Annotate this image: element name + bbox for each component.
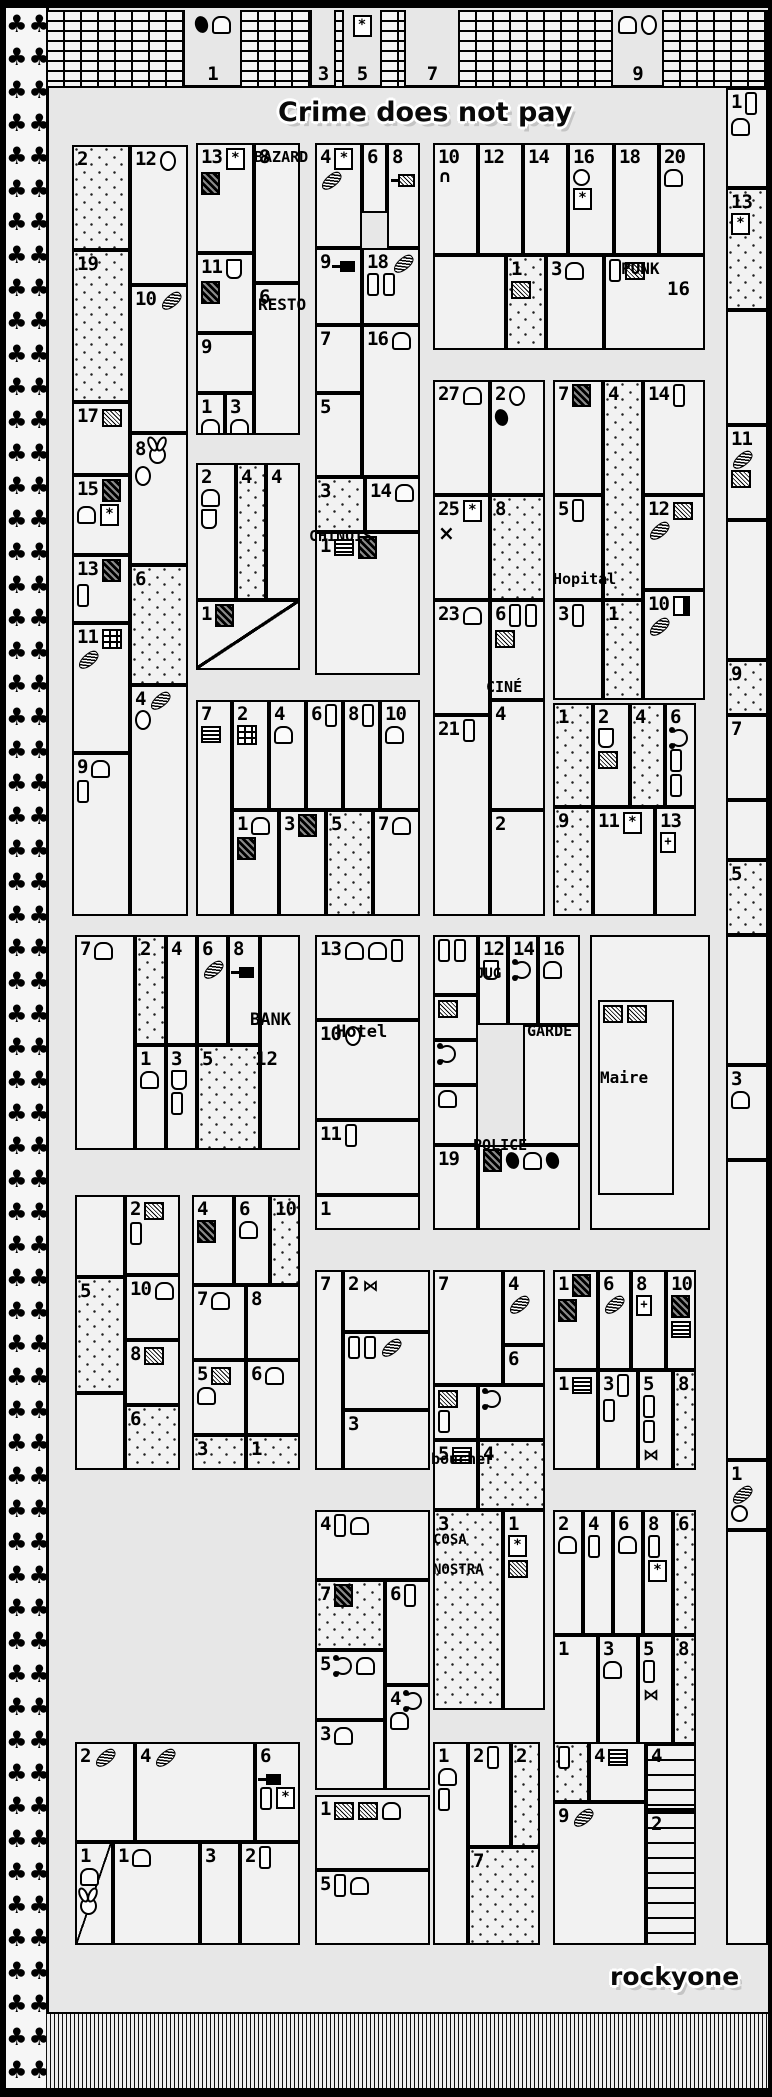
room-number: 1 [199, 396, 213, 417]
bottle-icon [367, 273, 379, 296]
room-number: 2 [243, 1845, 257, 1866]
room-number: 7 [318, 1583, 332, 1604]
helmet-icon [390, 1712, 409, 1730]
bowtie-icon: ⋈ [643, 1447, 659, 1463]
chinois-room: 8 [387, 143, 420, 248]
bottle-icon [643, 1420, 655, 1443]
boucher-room [433, 1385, 478, 1440]
room-number: 8 [676, 1373, 690, 1394]
shoe-icon [93, 1746, 119, 1770]
east-room: 9 [726, 660, 768, 715]
helmet-icon [350, 1517, 369, 1535]
blackcab-icon [197, 1220, 216, 1243]
flag-icon [671, 1321, 691, 1338]
water-band [46, 2012, 768, 2090]
windowh-icon [438, 1390, 458, 1408]
helmet-icon [368, 942, 387, 960]
street-entrance-1: 1 [185, 10, 240, 88]
windowh-icon [438, 1000, 458, 1018]
bowtie-icon: ⋈ [643, 1687, 659, 1703]
room-number: 13 [318, 938, 343, 959]
bottle-icon [572, 499, 584, 522]
room-number: 16 [571, 146, 596, 167]
southwest-room: 4 [135, 1742, 255, 1842]
room-number: 2 [199, 466, 213, 487]
midtown-room: 8 [343, 700, 380, 810]
room-number: 5 [329, 813, 343, 834]
east-2-room: 6 [613, 1510, 643, 1635]
room-number: 3 [195, 1438, 209, 1459]
blackcab-icon [298, 814, 317, 837]
city-wall [458, 10, 613, 88]
helmet-icon [239, 1221, 258, 1239]
south-central-room: 7 [468, 1847, 540, 1945]
helmet-icon [77, 506, 96, 524]
room-number: 5 [318, 1873, 332, 1894]
trolley-icon [398, 174, 415, 187]
midtown-room: 7 [373, 810, 420, 916]
helmet-icon [197, 1387, 216, 1405]
west-brick-room: 6 [125, 1405, 180, 1470]
room-number: 7 [376, 813, 390, 834]
chinois-room: 6 [362, 143, 387, 213]
bazard-resto-room: 9 [196, 333, 254, 393]
southwest-room: 2 [240, 1842, 300, 1945]
game-map-page: ♣♣ ♣♣ ♣♣ ♣♣ ♣♣ ♣♣ ♣♣ ♣♣ ♣♣ ♣♣ ♣♣ ♣♣ ♣♣ ♣… [0, 0, 772, 2097]
room-number: 5 [641, 1373, 655, 1394]
helmet-icon [230, 419, 249, 436]
room-number: 1 [318, 1198, 332, 1219]
room-number: 3 [203, 1845, 217, 1866]
room-number: 6 [506, 1348, 520, 1369]
room-number: 3 [549, 258, 563, 279]
helmet-icon [345, 942, 364, 960]
midtown-room: 1 [232, 810, 279, 916]
room-number: 1 [509, 258, 523, 279]
cine-room: 2 [490, 380, 545, 495]
room-number: 9 [556, 810, 570, 831]
room-number: 2 [75, 148, 89, 169]
room-number: 1 [556, 706, 570, 727]
room-number: 5 [200, 1048, 214, 1069]
helmet-icon [438, 1090, 457, 1108]
helmet-icon [463, 387, 482, 405]
blackcab-icon [201, 172, 220, 195]
room-number: 18 [365, 251, 390, 272]
bazard-annex-room: 2 [196, 463, 236, 600]
hopital-room: 10 [643, 590, 705, 700]
midtown-room: 10 [380, 700, 420, 810]
midtown-room: 7 [196, 700, 232, 916]
police-garde-room [433, 1040, 478, 1085]
room-number: 4 [169, 938, 183, 959]
room-number: 8 [493, 498, 507, 519]
jug-icon [201, 509, 217, 529]
bottle-icon [617, 1374, 629, 1397]
east-room: 7 [726, 715, 768, 800]
bottle-icon [463, 719, 475, 742]
room-number: 18 [617, 146, 642, 167]
room-number: 13 [658, 810, 683, 831]
helmet-icon [201, 489, 220, 507]
room-number: 11 [75, 626, 100, 647]
street-entrance-7: 7 [406, 10, 458, 88]
blacktrolley-icon [239, 967, 254, 978]
room-number: 10 [273, 1198, 298, 1219]
windowh-icon [211, 1367, 231, 1385]
blackcab-icon [572, 1274, 591, 1297]
bazard-annex-room: 1 [196, 600, 300, 670]
room-number: 21 [436, 718, 461, 739]
room-number: 15 [75, 478, 100, 499]
bottle-icon [509, 604, 521, 627]
windowh-icon [334, 1802, 354, 1820]
room-number: 3 [318, 480, 332, 501]
tepee-icon: × [438, 526, 455, 540]
room-number: 5 [318, 1653, 332, 1674]
room-number: 17 [75, 405, 100, 426]
bomb-icon [193, 15, 210, 35]
room-number: 7 [471, 1850, 485, 1871]
east-room: 1 [726, 1460, 768, 1530]
bottle-icon [648, 1535, 660, 1558]
room-number: 12 [481, 938, 506, 959]
blacktrolley-icon [266, 1774, 281, 1785]
central-1-room: 7 [192, 1285, 246, 1360]
room-number: 1 [556, 1273, 570, 1294]
residential-west-room: 8 [130, 433, 188, 565]
room-number: 6 [601, 1273, 615, 1294]
room-number: 2 [556, 1513, 570, 1534]
helmet-icon [523, 1152, 542, 1170]
west-brick-room: 10 [125, 1275, 180, 1340]
block-label: PUNK [621, 259, 660, 278]
residential-west-room: 9 [72, 753, 130, 916]
room-number: 4 [239, 466, 253, 487]
bank-room: 2 [135, 935, 166, 1045]
residential-west-room: 12 [130, 145, 188, 285]
west-brick-room [75, 1195, 125, 1277]
room-number: 10 [133, 288, 158, 309]
blackcab-icon [572, 384, 591, 407]
cine-room: 4 [490, 700, 545, 810]
egg-icon [641, 15, 657, 35]
flag-icon [201, 726, 221, 743]
room-number: 7 [318, 1273, 332, 1294]
hotel-room: 11 [315, 1120, 420, 1195]
south-central-room: 2 [511, 1742, 540, 1847]
room-number: 8 [133, 438, 147, 459]
boucher-room: 6 [503, 1345, 545, 1385]
room-number: 3 [601, 1373, 615, 1394]
block-label: BANK [250, 1010, 291, 1030]
room-number: 7 [729, 718, 743, 739]
egg-icon [135, 466, 151, 486]
room-number: 2 [138, 938, 152, 959]
room-number: 7 [436, 1273, 450, 1294]
bank-room: 4 [166, 935, 197, 1045]
room-number: 5 [729, 863, 743, 884]
safe-icon: * [508, 1535, 527, 1557]
block-label: boucher [431, 1450, 494, 1468]
egg-icon [160, 151, 176, 171]
helmet-icon [603, 1661, 622, 1679]
central-2-room [343, 1332, 430, 1410]
room-number: 19 [436, 1148, 461, 1169]
bottle-icon [334, 1874, 346, 1897]
bottle-icon [77, 780, 89, 803]
punk-room: 16* [568, 143, 614, 255]
room-number: 6 [616, 1513, 630, 1534]
central-1-room: 3 [192, 1435, 246, 1470]
bottle-icon [670, 749, 682, 772]
chinois-room: 7 [315, 325, 362, 393]
cine-room: 27 [433, 380, 490, 495]
maire-room [598, 1000, 674, 1195]
blackcab-icon [558, 1299, 577, 1322]
safe-icon: * [623, 812, 642, 834]
room-number: 1 [729, 91, 743, 112]
street-entrance-3: 3 [312, 10, 334, 88]
hopital-south-room: 9 [553, 807, 593, 916]
room-number: 14 [526, 146, 551, 167]
windowh-icon [731, 470, 751, 488]
room-number: 9 [318, 251, 332, 272]
flag-icon [572, 1377, 592, 1394]
boucher-room [478, 1385, 545, 1440]
east-wall [726, 1530, 768, 1945]
east-room: 13* [726, 188, 768, 310]
central-3-room: 3 [315, 1720, 385, 1790]
midtown-room: 3 [279, 810, 326, 916]
west-brick-room [75, 1393, 125, 1470]
blackcab-icon [334, 1584, 353, 1607]
police-garde-room [433, 1085, 478, 1145]
safe-icon: * [353, 15, 372, 37]
cuffs-icon [513, 961, 531, 979]
room-number: 8 [249, 1288, 263, 1309]
block-label: GARDE [527, 1022, 572, 1040]
east-1-room: 1 [553, 1370, 598, 1470]
block-label: COSA [433, 1532, 467, 1548]
room-number: 5 [195, 1363, 209, 1384]
east-1-room: 8 [673, 1370, 696, 1470]
bottle-icon [673, 384, 685, 407]
room-number: 4 [493, 703, 507, 724]
cine-room: 21 [433, 715, 490, 916]
shoe-icon [571, 1806, 597, 1830]
police-garde-room [433, 995, 478, 1040]
central-1-room: 4 [192, 1195, 234, 1285]
southeast-room: 9 [553, 1802, 646, 1945]
residential-west-room: 13 [72, 555, 130, 623]
safe-icon: * [334, 148, 353, 170]
room-number: 7 [78, 938, 92, 959]
punk-room: 12 [478, 143, 523, 255]
room-number: 9 [75, 756, 89, 777]
room-number: 4 [592, 1745, 606, 1766]
block-label: RESTO [258, 295, 306, 314]
shoe-icon [647, 519, 673, 543]
room-number: 11 [729, 428, 754, 449]
west-brick-room: 8 [125, 1340, 180, 1405]
hopital-room: 14 [643, 380, 705, 495]
room-number: 8 [646, 1513, 660, 1534]
helmet-icon [565, 262, 584, 280]
cine-room: 2 [490, 810, 545, 916]
chinois-room: 16 [362, 325, 420, 477]
room-number: 2 [346, 1273, 360, 1294]
room-number: 3 [729, 1068, 743, 1089]
room-number: 14 [511, 938, 536, 959]
room-number: 4 [138, 1745, 152, 1766]
punk-room [433, 255, 506, 350]
room-number: 6 [200, 938, 214, 959]
shoe-icon [730, 1483, 756, 1507]
east-room: 11 [726, 425, 768, 520]
east-wall [726, 1160, 768, 1460]
central-2-room: 3 [343, 1410, 430, 1470]
room-number: 7 [425, 63, 439, 84]
helmet-icon [91, 760, 110, 778]
shoe-icon [391, 252, 417, 276]
helmet-icon [463, 607, 482, 625]
flag-icon [608, 1749, 628, 1766]
room-number: 1 [199, 603, 213, 624]
hopital-room: 4 [603, 380, 643, 600]
east-1-room: 1 [553, 1270, 598, 1370]
midtown-room: 2 [232, 700, 269, 810]
block-label: CINÉ [486, 678, 522, 696]
hopital-south-room: 6 [665, 703, 696, 807]
midtown-room: 5 [326, 810, 373, 916]
midtown-room: 6 [306, 700, 343, 810]
helmet-icon [385, 726, 404, 744]
bottle-icon [259, 1846, 271, 1869]
room-number: 3 [228, 396, 242, 417]
block-label: 12 [255, 1048, 278, 1070]
cosa-nostra-room: 1* [503, 1510, 545, 1710]
bottle-icon [345, 1124, 357, 1147]
room-number: 10 [669, 1273, 694, 1294]
cine-room: 8 [490, 495, 545, 600]
chinois-room: 14 [365, 477, 420, 532]
room-number: 20 [662, 146, 687, 167]
room-number: 3 [556, 603, 570, 624]
street-entrance-9: 9 [613, 10, 662, 88]
boucher-room: 7 [433, 1270, 503, 1385]
helmet-icon [731, 118, 750, 136]
bottle-icon [391, 939, 403, 962]
block-label: 16 [667, 278, 690, 300]
windowh-icon [598, 751, 618, 769]
residential-west-room: 2 [72, 145, 130, 250]
shoe-icon [730, 448, 756, 472]
room-number: 4 [318, 146, 332, 167]
shoe-icon [647, 615, 673, 639]
windowg-icon [102, 629, 122, 649]
hopital-room: 7 [553, 380, 603, 495]
safe-icon: * [226, 148, 245, 170]
punk-room: 10∩ [433, 143, 478, 255]
hopital-room: 1 [603, 600, 643, 700]
bank-room: 1 [135, 1045, 166, 1150]
room-number: 3 [282, 813, 296, 834]
windowh-icon [508, 1560, 528, 1578]
bottle-icon [745, 92, 757, 115]
room-number: 6 [388, 1583, 402, 1604]
room-number: 7 [318, 328, 332, 349]
west-brick-room: 5 [75, 1277, 125, 1393]
east-room: 1 [726, 88, 768, 188]
windowh-icon [358, 1802, 378, 1820]
room-number: 7 [195, 1288, 209, 1309]
signature: rockyone [610, 1962, 739, 1991]
blackcab-icon [237, 837, 256, 860]
jug-icon [171, 1070, 187, 1090]
central-1-room: 1 [246, 1435, 300, 1470]
east-2-room: 4 [583, 1510, 613, 1635]
room-number: 9 [729, 663, 743, 684]
hopital-south-room: 13+ [655, 807, 696, 916]
windowh-icon [102, 409, 122, 427]
punk-room: 20 [659, 143, 705, 255]
room-number: 1 [436, 1745, 450, 1766]
windowh-icon [627, 1005, 647, 1023]
central-3-room: 4 [315, 1510, 430, 1580]
hopital-south-room: 1 [553, 703, 593, 807]
hotel-room: 1 [315, 1195, 420, 1230]
bottle-icon [454, 939, 466, 962]
rabbit-icon [149, 446, 166, 464]
bottle-icon [171, 1092, 183, 1115]
egg-icon [135, 710, 151, 730]
police-garde-room [523, 1025, 580, 1145]
southwest-room: 2 [75, 1742, 135, 1842]
room-number: 2 [471, 1745, 485, 1766]
room-number: 2 [596, 706, 610, 727]
room-number: 4 [133, 688, 147, 709]
city-wall [334, 10, 344, 88]
shoe-icon [602, 1293, 628, 1317]
room-number: 11 [596, 810, 621, 831]
block-label: Maire [600, 1068, 648, 1087]
bank-room: 6 [197, 935, 228, 1045]
room-number: 3 [601, 1638, 615, 1659]
blackcab-icon [215, 604, 234, 627]
residential-west-room: 6 [130, 565, 188, 685]
helmet-icon [94, 942, 113, 960]
blackcab-icon [102, 559, 121, 582]
helmet-icon [618, 1536, 637, 1554]
central-1-room: 10 [270, 1195, 300, 1285]
room-number: 19 [75, 253, 100, 274]
room-number: 4 [606, 383, 620, 404]
bottle-icon [260, 1787, 272, 1810]
room-number: 11 [318, 1123, 343, 1144]
east-wall [726, 800, 768, 860]
central-south-room: 1 [315, 1795, 430, 1870]
bottle-icon [643, 1395, 655, 1418]
room-number: 7 [556, 383, 570, 404]
helmet-icon [350, 1877, 369, 1895]
bottle-icon [334, 1514, 346, 1537]
bomb-icon [493, 407, 510, 427]
shoe-icon [201, 958, 227, 982]
helmet-icon [155, 1282, 174, 1300]
room-number: 14 [368, 480, 393, 501]
block-label: CHINOIS [309, 527, 372, 545]
